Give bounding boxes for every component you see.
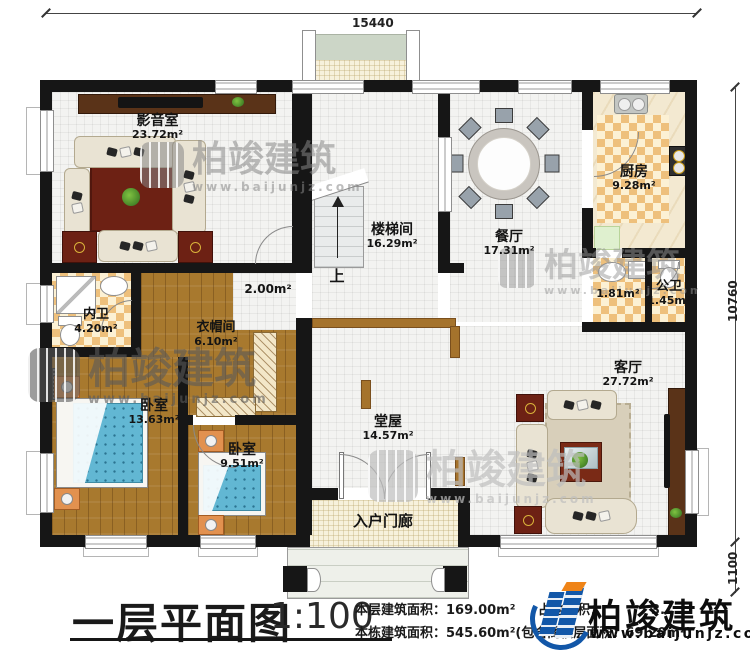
pillow bbox=[590, 400, 602, 410]
label-kitchen: 厨房 9.28m² bbox=[599, 164, 669, 193]
pillow bbox=[71, 190, 83, 200]
tv-icon bbox=[118, 97, 203, 108]
stairs-arrow-line bbox=[337, 206, 338, 258]
room-name: 厨房 bbox=[599, 164, 669, 180]
room-area: 9.28m² bbox=[599, 180, 669, 193]
label-media-room: 影音室 23.72m² bbox=[110, 113, 205, 142]
pillow bbox=[133, 147, 145, 157]
sink-basin bbox=[618, 98, 631, 111]
tv-icon bbox=[664, 414, 670, 488]
dim-top-label: 15440 bbox=[352, 16, 394, 30]
pillow bbox=[119, 146, 132, 158]
hall-post bbox=[455, 457, 465, 486]
wall-wc-south bbox=[40, 347, 141, 357]
wall-bedrooms-divider bbox=[178, 357, 188, 535]
sink-icon bbox=[598, 262, 626, 282]
burner bbox=[673, 150, 685, 162]
window-top-dining bbox=[518, 80, 572, 94]
window-bottom-bedroom-small bbox=[200, 535, 256, 549]
floor-hall bbox=[312, 326, 458, 488]
nightstand bbox=[54, 488, 80, 510]
lamp-icon bbox=[61, 381, 73, 393]
label-washroom: 1.81m² bbox=[592, 288, 644, 301]
label-cloakroom: 衣帽间 6.10m² bbox=[178, 321, 254, 349]
dim-line-top bbox=[45, 13, 697, 14]
hall-post bbox=[361, 380, 371, 409]
room-area: 23.72m² bbox=[110, 129, 205, 142]
lamp-icon bbox=[61, 493, 73, 505]
wall-stairhall-east-n bbox=[438, 92, 450, 137]
title-underline bbox=[70, 638, 392, 641]
room-name: 衣帽间 bbox=[178, 321, 254, 336]
room-area: 4.20m² bbox=[68, 323, 124, 336]
plant-icon bbox=[572, 452, 588, 468]
room-area: 9.51m² bbox=[206, 458, 278, 471]
washing-machine-icon bbox=[628, 261, 646, 279]
kitchen-mat bbox=[594, 226, 620, 250]
pillow bbox=[132, 241, 144, 251]
wall-stairhall-stub bbox=[438, 263, 464, 273]
wall-wc-cloak bbox=[131, 273, 141, 357]
plant-icon bbox=[122, 188, 140, 206]
room-area: 16.29m² bbox=[354, 238, 430, 251]
burner bbox=[673, 162, 685, 174]
room-area: 14.57m² bbox=[350, 430, 426, 443]
room-name: 入户门廊 bbox=[328, 513, 438, 530]
wall-bath-south bbox=[582, 322, 697, 332]
media-side-table bbox=[178, 231, 213, 263]
table-lamp-icon bbox=[525, 403, 536, 414]
label-bedroom-small: 卧室 9.51m² bbox=[206, 442, 278, 471]
label-corridor: 2.00m² bbox=[238, 283, 298, 297]
pillow bbox=[119, 241, 131, 251]
porch-pillar-round bbox=[307, 568, 321, 592]
room-area: 2.00m² bbox=[238, 283, 298, 297]
pillow bbox=[71, 201, 84, 213]
porch-pillar bbox=[443, 566, 467, 592]
porch-pillar-round bbox=[431, 568, 445, 592]
room-name: 堂屋 bbox=[350, 414, 426, 430]
dim-right-lower-label: 1100 bbox=[726, 552, 740, 585]
dining-chair bbox=[495, 204, 513, 219]
label-stairwell: 楼梯间 16.29m² bbox=[354, 222, 430, 251]
nightstand bbox=[198, 515, 224, 535]
floor-plan: 15440 10760 1100 bbox=[0, 0, 750, 653]
window-stairhall-dining bbox=[438, 137, 452, 212]
wall-kitchen-west-n bbox=[582, 92, 593, 130]
wall-top bbox=[40, 80, 697, 92]
table-lamp-icon bbox=[190, 242, 201, 253]
floor-area-label: 本层建筑面积： bbox=[355, 603, 446, 618]
label-dining: 餐厅 17.31m² bbox=[472, 229, 546, 258]
total-area-label: 本栋建筑面积： bbox=[355, 626, 446, 641]
pillow bbox=[526, 473, 538, 483]
railing-leg bbox=[450, 326, 460, 358]
window-top-media bbox=[215, 80, 257, 94]
room-name: 楼梯间 bbox=[354, 222, 430, 238]
pillow bbox=[183, 194, 195, 204]
living-sofa-bottom bbox=[545, 498, 637, 534]
lamp-icon bbox=[205, 519, 217, 531]
wall-media-south bbox=[52, 263, 312, 273]
label-living: 客厅 27.72m² bbox=[589, 360, 667, 389]
room-name: 客厅 bbox=[589, 360, 667, 376]
stairs-up-label: 上 bbox=[322, 268, 352, 285]
railing-stair-hall bbox=[312, 318, 456, 328]
terrace-door bbox=[412, 80, 480, 94]
pillow bbox=[598, 510, 611, 522]
media-sofa-front bbox=[98, 230, 178, 262]
plant-icon bbox=[232, 97, 244, 107]
window-top-kitchen bbox=[600, 80, 670, 94]
wall-kitchen-south-a bbox=[582, 248, 596, 258]
room-area: 17.31m² bbox=[472, 245, 546, 258]
wall-hall-south-right bbox=[428, 488, 470, 500]
dining-chair bbox=[495, 108, 513, 123]
room-name: 内卫 bbox=[68, 308, 124, 323]
window-bottom-living bbox=[500, 535, 657, 549]
pillow bbox=[563, 400, 575, 410]
room-name: 卧室 bbox=[206, 442, 278, 458]
wardrobe-bedroom-small bbox=[196, 397, 256, 417]
brand-site: www.baijunjz.com bbox=[590, 626, 750, 642]
room-name: 餐厅 bbox=[472, 229, 546, 245]
room-name: 卧室 bbox=[116, 398, 192, 414]
label-public-wc: 公卫 1.45m² bbox=[643, 280, 695, 308]
window-left-media bbox=[40, 110, 54, 172]
dining-chair bbox=[545, 155, 560, 173]
wall-media-east bbox=[292, 92, 312, 273]
nightstand bbox=[54, 376, 80, 398]
room-area: 1.81m² bbox=[592, 288, 644, 301]
pillow bbox=[183, 181, 196, 193]
living-side-table bbox=[516, 394, 544, 422]
window-right-living bbox=[685, 450, 699, 514]
wall-corridor-east bbox=[296, 318, 312, 535]
brand-logo-icon bbox=[534, 586, 590, 644]
table-lamp-icon bbox=[523, 515, 534, 526]
living-side-table bbox=[514, 506, 542, 534]
room-area: 13.63m² bbox=[116, 414, 192, 427]
porch-pillar bbox=[283, 566, 307, 592]
room-area: 27.72m² bbox=[589, 376, 667, 389]
pillow bbox=[576, 399, 589, 411]
media-sofa-right bbox=[172, 140, 206, 234]
window-left-wc bbox=[40, 285, 54, 323]
label-porch: 入户门廊 bbox=[328, 513, 438, 530]
pillow bbox=[106, 147, 118, 157]
dim-right-main-label: 10760 bbox=[726, 280, 740, 322]
wall-porch-right bbox=[458, 500, 470, 547]
room-area: 1.45m² bbox=[643, 295, 695, 308]
pillow bbox=[585, 511, 597, 521]
table-lamp-icon bbox=[74, 242, 85, 253]
stairs-up-text: 上 bbox=[322, 268, 352, 285]
pillow bbox=[183, 170, 195, 180]
room-name: 公卫 bbox=[643, 280, 695, 295]
terrace-deck bbox=[314, 34, 408, 62]
stairs-arrow-head bbox=[332, 196, 344, 207]
wall-bedroom-small-north-b bbox=[235, 415, 296, 425]
pillow bbox=[145, 240, 158, 252]
living-sofa-top bbox=[547, 390, 617, 420]
media-sofa-left bbox=[64, 168, 90, 236]
media-side-table bbox=[62, 231, 97, 263]
floor-area-value: 169.00m² bbox=[446, 603, 515, 618]
sink-icon bbox=[100, 276, 128, 296]
dining-table-top bbox=[477, 137, 531, 191]
window-bottom-bedroom-large bbox=[85, 535, 147, 549]
wall-bottom-west bbox=[40, 535, 310, 547]
living-sofa-left bbox=[516, 424, 548, 508]
label-hall: 堂屋 14.57m² bbox=[350, 414, 426, 443]
room-area: 6.10m² bbox=[178, 336, 254, 349]
window-left-bedroom bbox=[40, 453, 54, 513]
label-bedroom-large: 卧室 13.63m² bbox=[116, 398, 192, 427]
window-top-stairhall bbox=[292, 80, 364, 94]
pillow bbox=[526, 460, 539, 472]
plant-icon bbox=[670, 508, 682, 518]
kitchen-sink-icon bbox=[614, 94, 648, 114]
page-title: 一层平面图 bbox=[72, 590, 292, 651]
sink-basin bbox=[632, 98, 645, 111]
pillow bbox=[526, 449, 538, 459]
wall-kitchen-south-b bbox=[622, 248, 697, 258]
wardrobe-cloakroom bbox=[253, 332, 277, 412]
room-name: 影音室 bbox=[110, 113, 205, 129]
pillow bbox=[572, 511, 584, 521]
label-private-wc: 内卫 4.20m² bbox=[68, 308, 124, 336]
